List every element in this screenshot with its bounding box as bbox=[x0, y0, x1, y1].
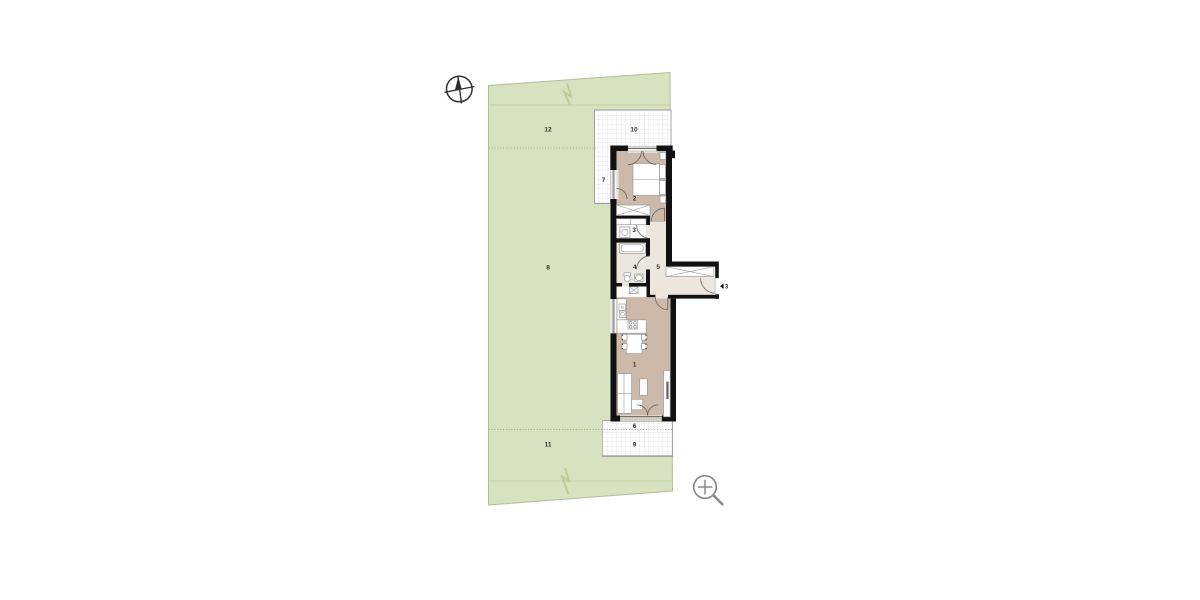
svg-text:4: 4 bbox=[633, 264, 637, 271]
svg-text:6: 6 bbox=[633, 423, 637, 430]
svg-text:10: 10 bbox=[630, 127, 638, 134]
svg-text:9: 9 bbox=[633, 442, 637, 449]
svg-text:1: 1 bbox=[633, 362, 637, 369]
svg-text:8: 8 bbox=[546, 265, 550, 272]
svg-text:2: 2 bbox=[633, 196, 637, 203]
svg-text:5: 5 bbox=[656, 264, 660, 271]
svg-text:3: 3 bbox=[632, 227, 636, 234]
svg-text:11: 11 bbox=[545, 442, 552, 449]
svg-text:7: 7 bbox=[602, 177, 606, 184]
svg-text:12: 12 bbox=[544, 127, 552, 134]
